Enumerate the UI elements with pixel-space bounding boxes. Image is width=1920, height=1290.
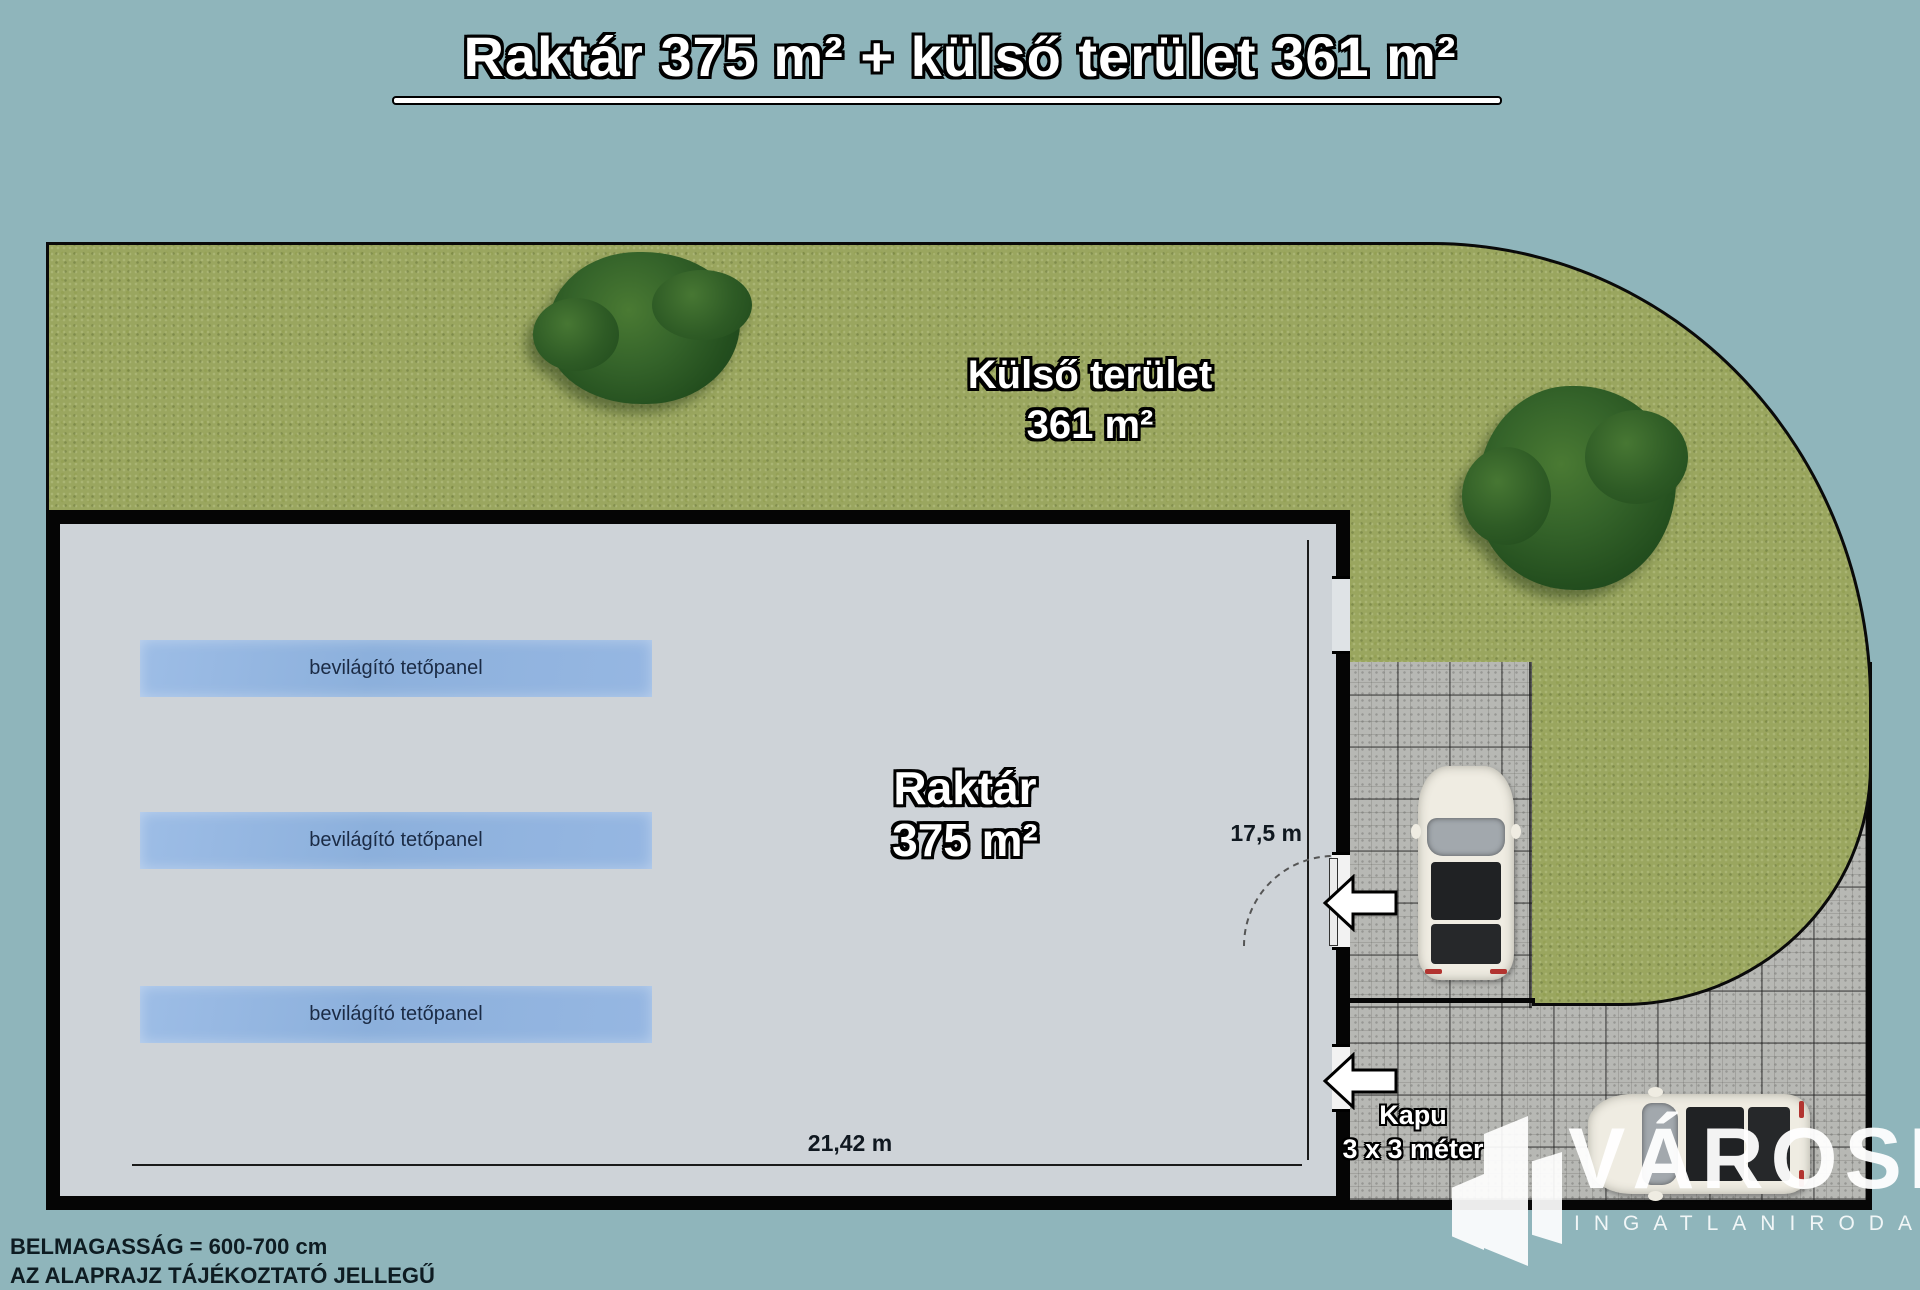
brand-subtitle: INGATLANIRODA — [1574, 1212, 1920, 1236]
floor-plan-scene: Raktár 375 m² + külső terület 361 m² Kül… — [0, 0, 1920, 1280]
outdoor-area-name: Külső terület — [930, 350, 1250, 400]
note-disclaimer: AZ ALAPRAJZ TÁJÉKOZTATÓ JELLEGŰ — [10, 1261, 435, 1290]
tree — [1478, 386, 1676, 590]
skylight-panel: bevilágító tetőpanel — [140, 986, 652, 1043]
car-roof — [1431, 924, 1501, 964]
dimension-line-width — [132, 1164, 1302, 1166]
plan-notes: BELMAGASSÁG = 600-700 cm AZ ALAPRAJZ TÁJ… — [10, 1232, 435, 1290]
car-mirror — [1411, 824, 1421, 839]
warehouse-name: Raktár — [810, 762, 1120, 814]
car-taillight — [1425, 969, 1442, 974]
skylight-label: bevilágító tetőpanel — [309, 829, 482, 852]
skylight-panel: bevilágító tetőpanel — [140, 640, 652, 697]
tree — [548, 252, 740, 404]
dimension-line-height — [1307, 540, 1309, 1160]
skylight-label: bevilágító tetőpanel — [309, 1003, 482, 1026]
boundary-line — [1345, 998, 1535, 1003]
car-taillight — [1490, 969, 1507, 974]
left-arrow-icon — [1322, 874, 1400, 932]
height-dimension-label: 17,5 m — [1222, 820, 1302, 847]
brand-name: VÁROSI — [1568, 1110, 1920, 1209]
outdoor-area-label: Külső terület 361 m² — [930, 350, 1250, 450]
page-title: Raktár 375 m² + külső terület 361 m² — [0, 24, 1920, 89]
brand-logo: VÁROSI INGATLANIRODA — [1452, 1110, 1918, 1275]
car-top-view — [1418, 766, 1514, 980]
car-windshield — [1427, 818, 1505, 856]
skylight-label: bevilágító tetőpanel — [309, 657, 482, 680]
car-mirror — [1648, 1087, 1663, 1097]
outdoor-area-size: 361 m² — [930, 400, 1250, 450]
warehouse-size: 375 m² — [810, 814, 1120, 866]
title-underline — [392, 96, 1502, 105]
width-dimension-label: 21,42 m — [760, 1130, 940, 1157]
building-icon — [1452, 1116, 1564, 1272]
note-ceiling-height: BELMAGASSÁG = 600-700 cm — [10, 1232, 435, 1261]
car-mirror — [1511, 824, 1521, 839]
skylight-panel: bevilágító tetőpanel — [140, 812, 652, 869]
car-roof — [1431, 862, 1501, 920]
warehouse-label: Raktár 375 m² — [810, 762, 1120, 866]
wall-opening — [1332, 576, 1350, 654]
